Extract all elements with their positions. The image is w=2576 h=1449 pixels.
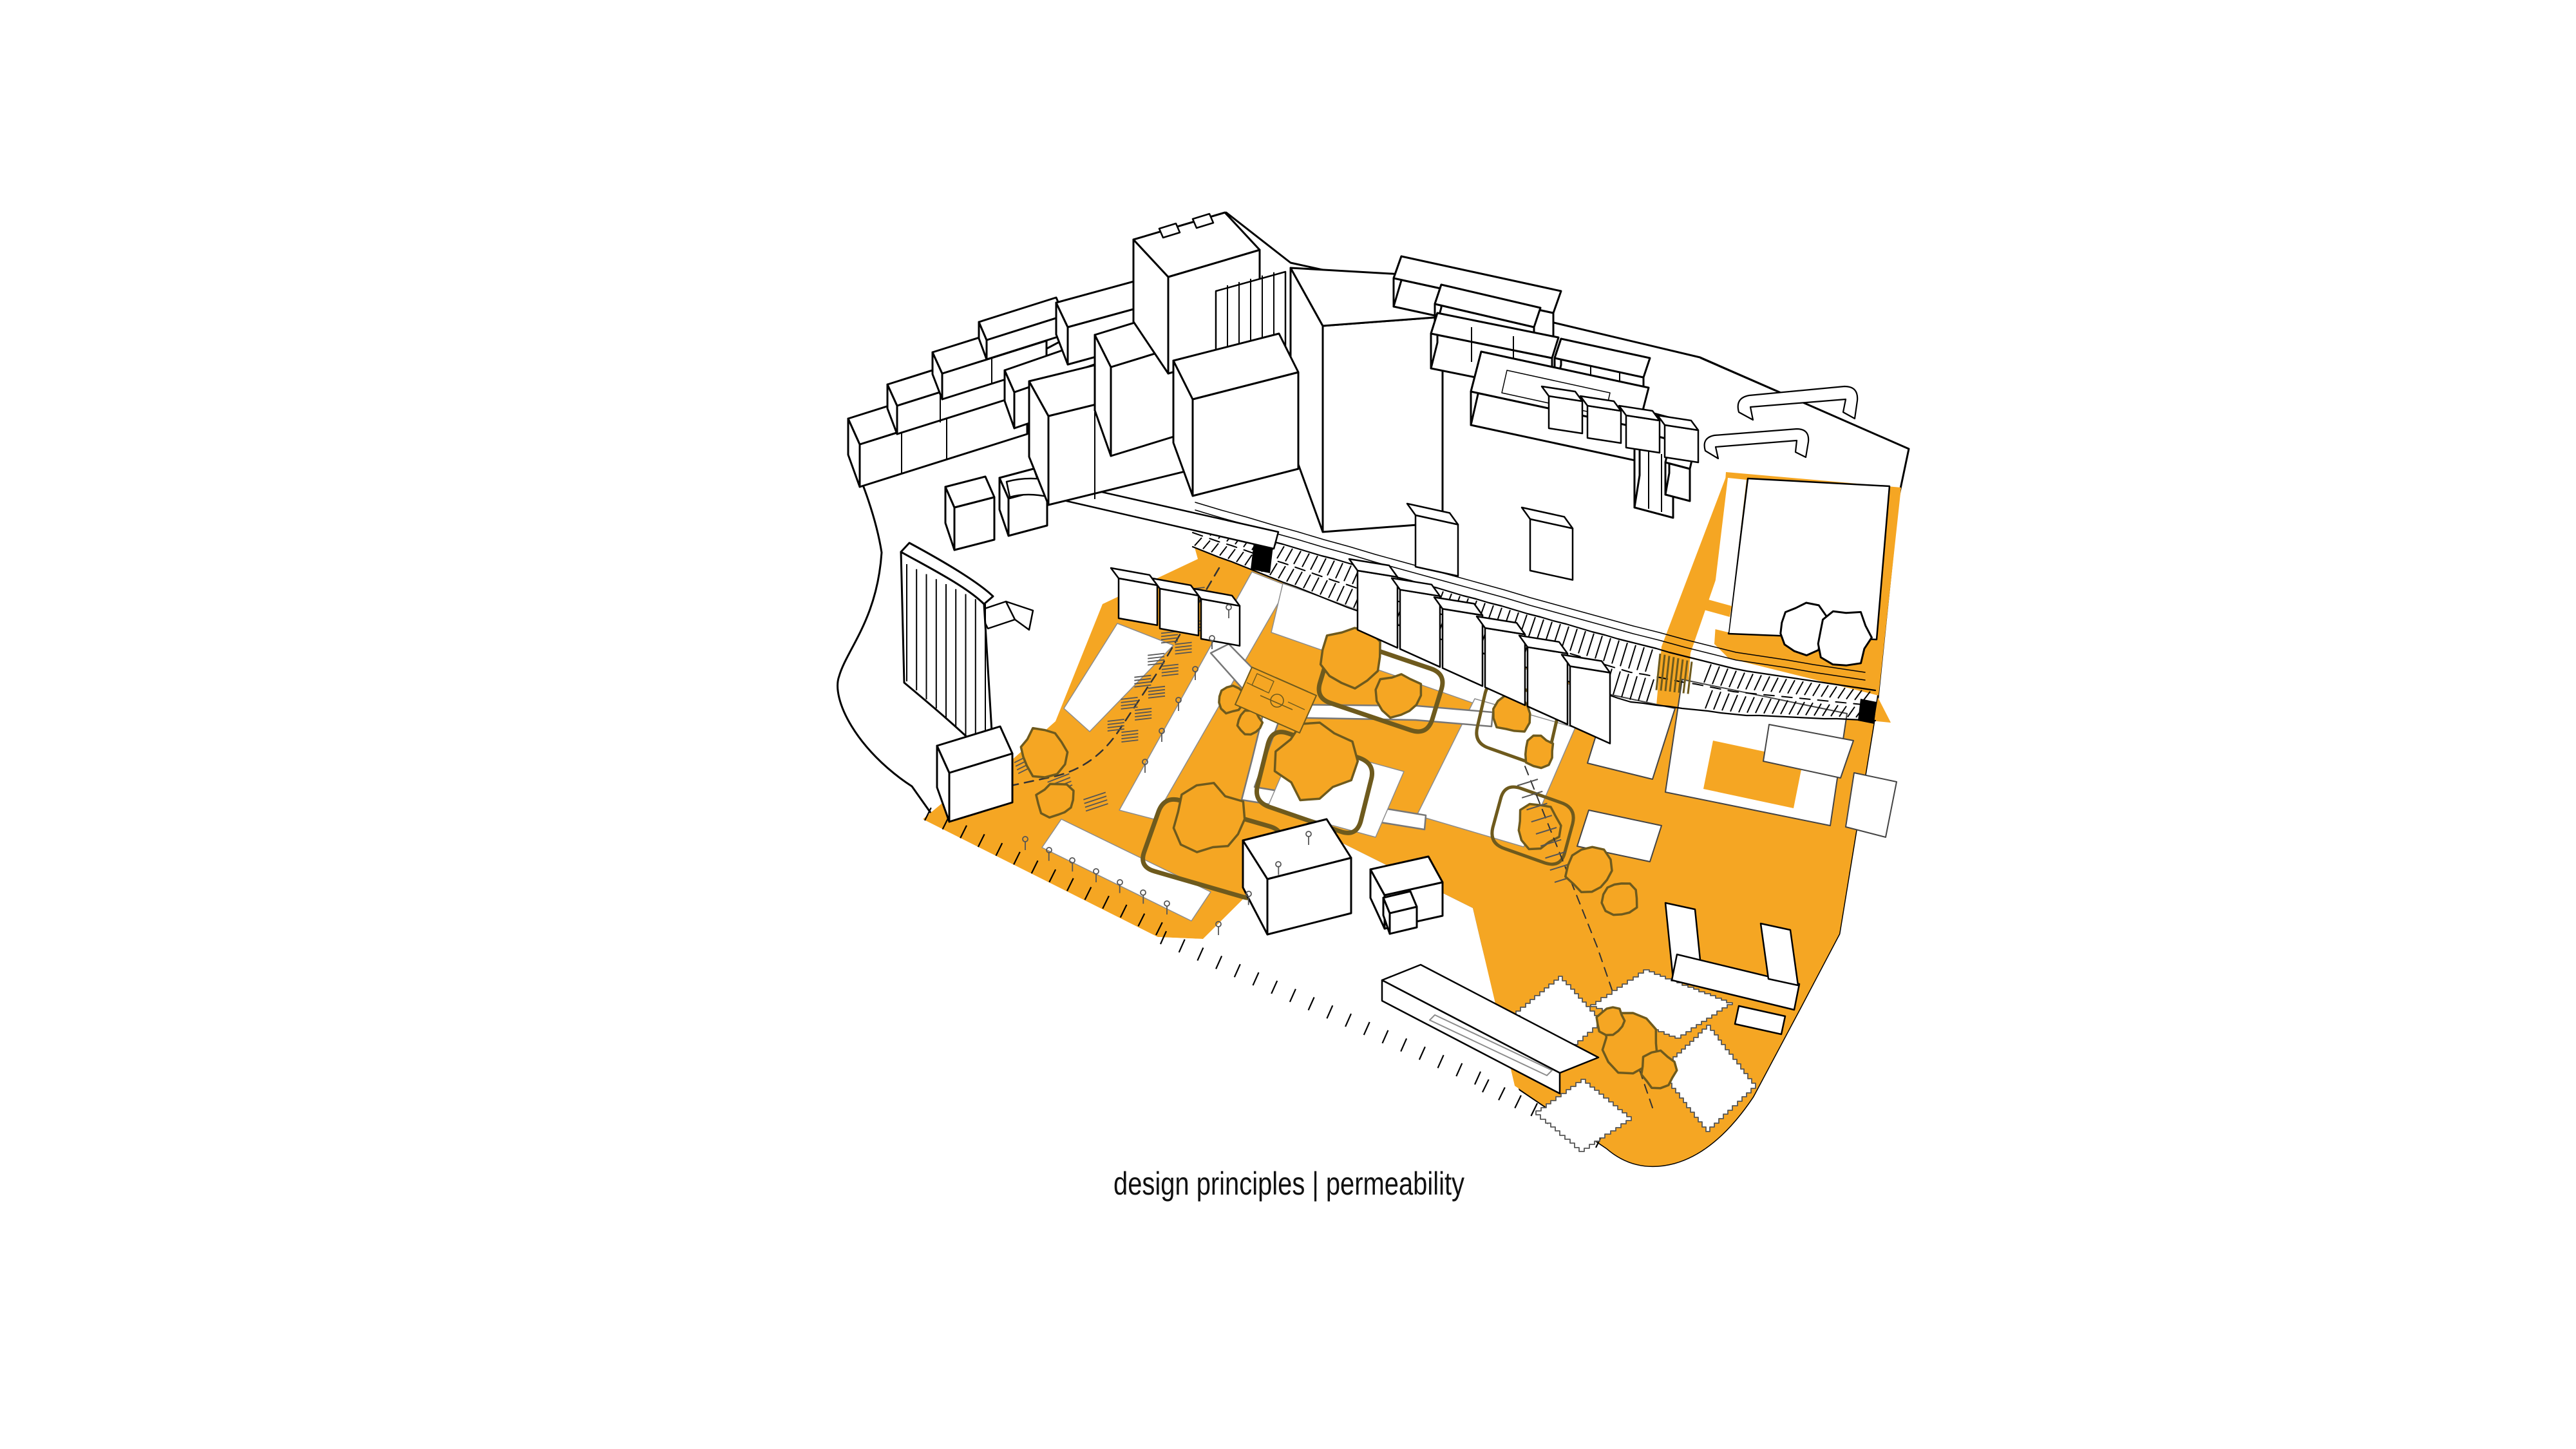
svg-text:design principles | permeabili: design principles | permeability [1113, 1166, 1464, 1202]
